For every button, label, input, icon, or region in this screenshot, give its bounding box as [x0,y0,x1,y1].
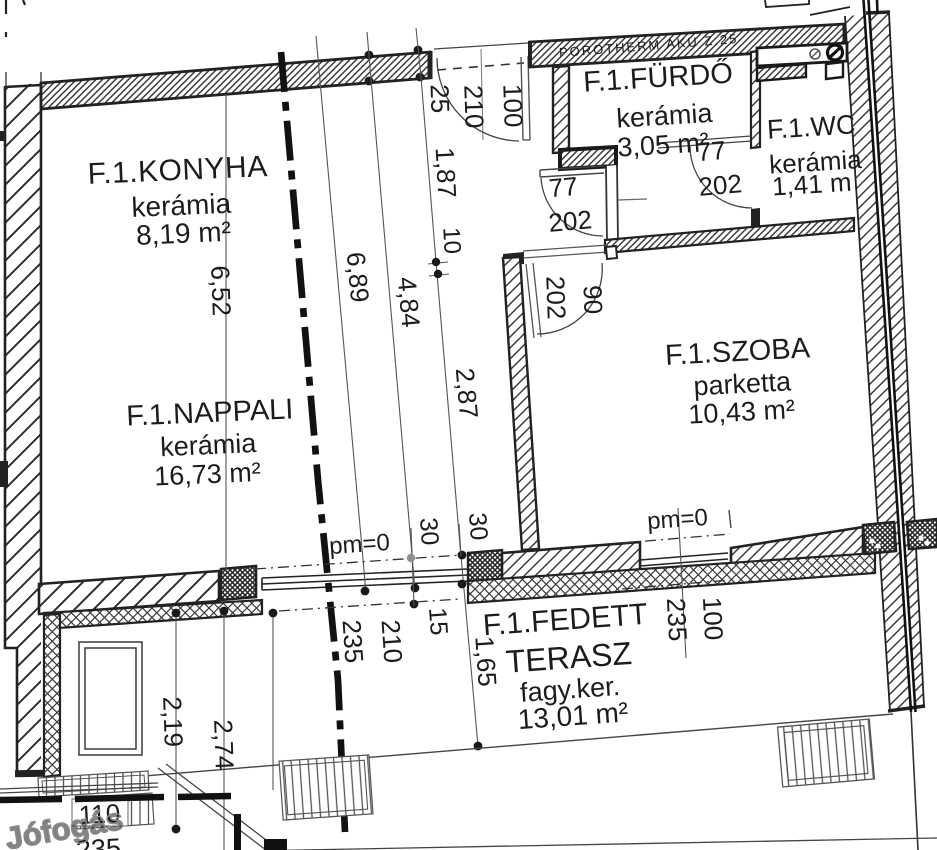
svg-text:pm=0: pm=0 [646,504,708,535]
svg-text:4,84: 4,84 [392,276,426,329]
svg-text:10,43 m²: 10,43 m² [688,394,796,430]
svg-text:100: 100 [497,83,528,127]
svg-text:8,19 m²: 8,19 m² [135,216,231,251]
svg-text:90: 90 [577,285,608,315]
svg-text:210: 210 [458,84,489,128]
svg-text:2,74: 2,74 [208,719,240,771]
svg-text:100: 100 [697,596,729,641]
svg-text:202: 202 [697,168,743,202]
svg-text:6,89: 6,89 [341,251,375,304]
svg-text:235: 235 [337,619,370,664]
svg-text:F.1.WC: F.1.WC [766,109,856,144]
svg-text:1,65: 1,65 [469,635,502,688]
svg-text:77: 77 [696,135,727,167]
svg-text:10: 10 [437,227,465,255]
svg-text:210: 210 [376,619,409,664]
svg-text:77: 77 [548,171,579,203]
svg-text:202: 202 [540,275,571,319]
svg-text:30: 30 [463,512,493,542]
svg-text:202: 202 [547,204,593,238]
svg-text:1,87: 1,87 [430,146,463,198]
svg-text:235: 235 [661,597,693,642]
svg-text:6,52: 6,52 [205,265,237,317]
svg-text:2,19: 2,19 [157,696,189,748]
svg-text:30: 30 [414,517,444,547]
svg-text:25: 25 [424,84,455,114]
svg-text:15: 15 [423,607,453,637]
svg-text:pm=0: pm=0 [328,529,390,560]
svg-text:1,41 m: 1,41 m [771,167,852,202]
svg-text:2,87: 2,87 [450,367,484,420]
svg-text:16,73 m²: 16,73 m² [154,457,262,492]
